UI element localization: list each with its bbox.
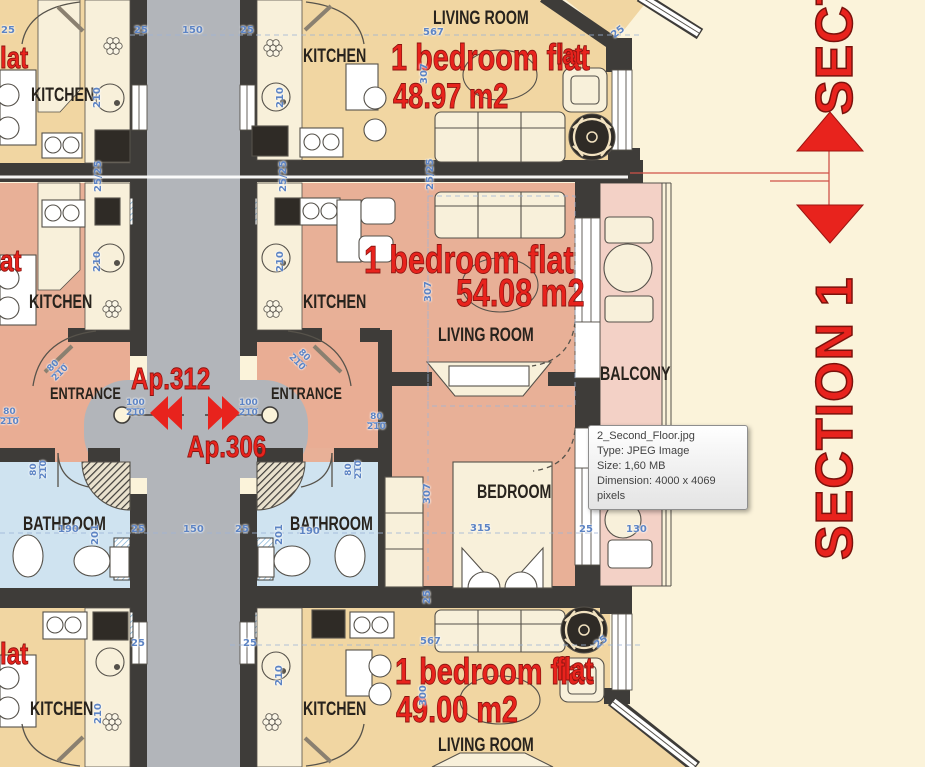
dimension-label: 150	[182, 26, 203, 36]
room-label-entrance-right: ENTRANCE	[271, 385, 342, 402]
tooltip-dimension-cont: pixels	[597, 489, 739, 504]
dimension-label: 25/25	[94, 161, 104, 192]
dimension-label: 25/25	[426, 159, 436, 190]
dimension-label: 25	[131, 639, 145, 649]
room-label-kitchen-bottom-center: KITCHEN	[303, 700, 366, 719]
dimension-label: 201	[275, 524, 285, 545]
flower-icon	[264, 40, 282, 57]
room-label-living-room-top: LIVING ROOM	[433, 9, 529, 28]
flower-icon	[263, 714, 281, 731]
flat-label-partial-mid-left: at	[0, 245, 22, 276]
dimension-label: 25	[423, 590, 433, 604]
apartment-label-right: Ap.306	[187, 431, 266, 462]
floor-plan-image[interactable]: LIVING ROOM KITCHEN KITCHEN KITCHEN KITC…	[0, 0, 925, 767]
dimension-label: 80210	[30, 460, 49, 479]
dimension-label: 25	[243, 639, 257, 649]
dimension-label: 307	[423, 483, 433, 504]
bath-sink-icon	[13, 535, 43, 577]
toilet-icon	[274, 546, 310, 576]
tooltip-size: Size: 1,60 MB	[597, 459, 739, 474]
dimension-label: 25	[134, 26, 148, 36]
dimension-label: 567	[423, 28, 444, 38]
flat-area-top: 48.97 m2	[393, 79, 508, 114]
dimension-label: 190	[58, 525, 79, 535]
dimension-label: 210	[275, 665, 285, 686]
file-tooltip: 2_Second_Floor.jpg Type: JPEG Image Size…	[588, 425, 748, 510]
room-label-kitchen-top-center: KITCHEN	[303, 47, 366, 66]
room-label-kitchen-mid-center: KITCHEN	[303, 293, 366, 312]
dimension-label: 80210	[367, 413, 386, 432]
bath-sink-icon	[335, 535, 365, 577]
room-label-kitchen-bottom-left: KITCHEN	[30, 700, 93, 719]
dimension-label: 307	[424, 281, 434, 302]
dimension-label: 25/25	[279, 161, 289, 192]
room-label-bedroom: BEDROOM	[477, 483, 551, 502]
room-label-entrance-left: ENTRANCE	[50, 385, 121, 402]
dimension-label: 300	[419, 685, 429, 706]
dimension-label: 130	[626, 525, 647, 535]
flat-area-bottom: 49.00 m2	[396, 691, 518, 728]
plant-icon	[569, 114, 615, 160]
dimension-label: 210	[94, 703, 104, 724]
tooltip-dimension: Dimension: 4000 x 4069	[597, 474, 739, 489]
room-label-kitchen-mid-left: KITCHEN	[29, 293, 92, 312]
dimension-label: 25	[240, 26, 254, 36]
flat-area-mid: 54.08 m2	[456, 274, 585, 313]
dimension-label: 210	[276, 87, 286, 108]
dimension-label: 315	[470, 524, 491, 534]
dimension-label: 210	[276, 251, 286, 272]
dimension-label: 307	[420, 63, 430, 84]
dimension-label: 210	[93, 251, 103, 272]
tooltip-type: Type: JPEG Image	[597, 444, 739, 459]
tooltip-filename: 2_Second_Floor.jpg	[597, 429, 739, 444]
dimension-label: 25	[131, 525, 145, 535]
dimension-label: 25	[235, 525, 249, 535]
flat-label-partial-bottom-right: flat	[556, 653, 593, 685]
room-label-living-room-mid: LIVING ROOM	[438, 326, 534, 345]
room-label-balcony: BALCONY	[600, 365, 670, 384]
dimension-label: 190	[299, 527, 320, 537]
wardrobe-icon	[385, 477, 423, 587]
flower-icon	[103, 714, 121, 731]
dimension-label: 80210	[0, 408, 19, 427]
flower-icon	[264, 301, 282, 318]
room-label-kitchen-top-left: KITCHEN	[31, 86, 94, 105]
flat-label-partial-top-right: lat	[556, 41, 582, 70]
dimension-label: 25	[579, 525, 593, 535]
flat-label-partial-top-left: lat	[0, 42, 28, 73]
dimension-label: 567	[420, 637, 441, 647]
dimension-label: 210	[93, 87, 103, 108]
dimension-label: 100210	[239, 399, 258, 418]
room-label-living-room-bottom: LIVING ROOM	[438, 736, 534, 755]
dimension-label: 25	[1, 26, 15, 36]
dimension-label: 100210	[126, 399, 145, 418]
dimension-label: 201	[91, 524, 101, 545]
flower-icon	[104, 38, 122, 55]
apartment-label-left: Ap.312	[131, 363, 210, 394]
bed-icon	[453, 462, 552, 588]
toilet-icon	[74, 546, 110, 576]
flat-label-partial-bottom-left: lat	[0, 638, 28, 669]
dimension-label: 80210	[345, 460, 364, 479]
dimension-label: 150	[183, 525, 204, 535]
flower-icon	[103, 301, 121, 318]
